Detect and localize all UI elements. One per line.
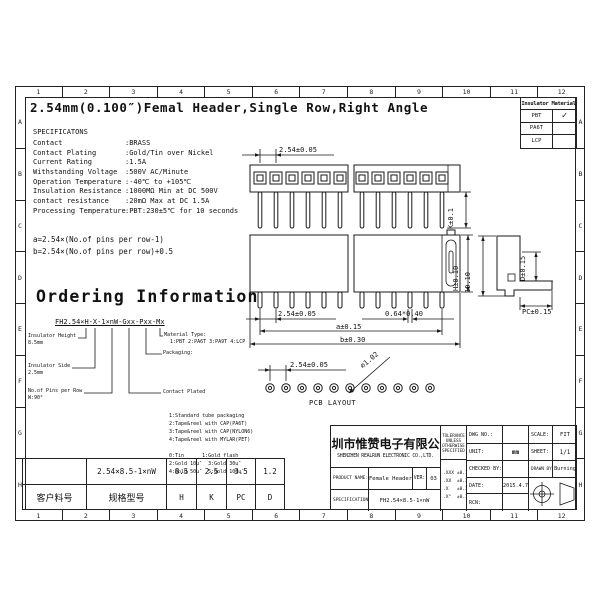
zone-letter: D: [15, 252, 25, 304]
spec-label: Contact: [33, 139, 125, 147]
specification-value: FH2.54×8.5-1×nW: [369, 490, 441, 511]
zone-letter: E: [576, 304, 585, 356]
dim-front-a: a±0.15: [336, 323, 361, 331]
checked-by-value: [503, 461, 529, 478]
zone-letter: G: [576, 408, 585, 460]
zone-letter: D: [576, 252, 585, 304]
dwg-no-value: [503, 426, 529, 444]
rcn-value: [503, 494, 529, 511]
drawing-title: 2.54mm(0.100″)Femal Header,Single Row,Ri…: [30, 101, 428, 115]
h-header: H: [166, 484, 196, 509]
spec-label: Operation Temperature: [33, 178, 125, 186]
tolerance-line: .XX ±0.20: [443, 478, 467, 486]
spec-label: Current Rating: [33, 158, 125, 166]
zone-letter: A: [576, 97, 585, 149]
spec-value: :Gold/Tin over Nickel: [125, 149, 214, 157]
dim-front-b: b±0.30: [340, 336, 365, 344]
material-checkmark: [553, 135, 576, 148]
spec-row: Operation Temperature :-40℃ to +105℃: [33, 177, 238, 187]
spec-value: :20mΩ Max at DC 1.5A: [125, 197, 209, 205]
border-zone-numbers-bottom: 123456789101112: [15, 510, 585, 521]
company-name-cn: 深圳市惟赞电子有限公司: [331, 435, 441, 452]
material-name: PBT: [521, 110, 553, 122]
zone-letter: F: [15, 356, 25, 408]
tolerance-line: .X° ±0.3°: [443, 494, 467, 502]
pcb-layout-label: PCB LAYOUT: [309, 399, 356, 407]
spec-label: Contact Plating: [33, 149, 125, 157]
callout-height-value: 8.5mm: [28, 341, 43, 347]
d-header: D: [255, 484, 284, 509]
zone-number: 2: [63, 510, 111, 521]
zone-letter: H: [576, 459, 585, 510]
h-value: 8.5: [166, 459, 196, 484]
checked-by-label: CHECKED BY:: [467, 461, 503, 478]
customer-part-header: 客户料号: [23, 484, 86, 509]
zone-number: 9: [396, 86, 444, 97]
d-value: 1.2: [255, 459, 284, 484]
spec-row: Insulation Resistance :1000MΩ Min at DC …: [33, 186, 238, 196]
specs-list: Contact :BRASS Contact Plating :Gold/Tin…: [33, 138, 238, 216]
spec-model-cell: 2.54×8.5-1×nW: [86, 459, 166, 484]
dim-front-pitch: 2.54±0.05: [278, 310, 316, 318]
callout-pins-value: W:90°: [28, 396, 43, 402]
border-zone-letters-left: ABCDEFGH: [15, 97, 25, 510]
zone-number: 6: [253, 510, 301, 521]
customer-part-cell: [23, 459, 86, 484]
k-header: K: [196, 484, 226, 509]
zone-number: 5: [205, 86, 253, 97]
spec-row: Contact Plating :Gold/Tin over Nickel: [33, 148, 238, 158]
product-name-label: PRODUCT NAME:: [331, 468, 369, 490]
dim-front-h: H±0.10: [452, 266, 460, 291]
unit-value: mm: [503, 444, 529, 461]
ordering-heading: Ordering Information: [36, 288, 259, 307]
tolerance-note-line: SPECIFIED: [442, 448, 465, 453]
spec-label: contact resistance: [33, 197, 125, 205]
spec-value: :1.5A: [125, 158, 146, 166]
third-angle-projection-icon: [529, 478, 577, 511]
ordering-code: FH2.54×H-X-1×nW-Gxx-Pxx-Mx: [55, 318, 165, 326]
insulator-material-header: Insulator Material: [521, 98, 576, 110]
sheet-label: SHEET:: [529, 444, 553, 461]
zone-number: 1: [15, 510, 63, 521]
tolerance-line: .X ±0.30: [443, 486, 467, 494]
callout-pins-label: No.of Pins per Row: [28, 389, 82, 395]
sheet-value: 1/1: [553, 444, 577, 461]
drawn-by-label: DRAWN BY:: [529, 461, 553, 478]
contact-plated-label: Contact Plated: [163, 390, 205, 396]
border-zone-numbers-top: 123456789101112: [15, 86, 585, 97]
zone-letter: C: [15, 201, 25, 253]
note-a: a=2.54×(No.of pins per row-1): [33, 236, 164, 245]
zone-number: 6: [253, 86, 301, 97]
zone-number: 3: [110, 86, 158, 97]
zone-number: 12: [538, 86, 585, 97]
insulator-material-row: PA6T: [521, 123, 576, 136]
dim-side-height: 10.10: [464, 272, 472, 293]
date-label: DATE:: [467, 478, 503, 494]
zone-number: 10: [443, 86, 491, 97]
unit-label: UNIT:: [467, 444, 503, 461]
pc-value: 3.5: [226, 459, 255, 484]
zone-number: 1: [15, 86, 63, 97]
spec-summary-table: 2.54×8.5-1×nW 8.5 2.5 3.5 1.2 客户料号 规格型号 …: [22, 458, 285, 510]
zone-number: 5: [205, 510, 253, 521]
material-name: LCP: [521, 135, 553, 148]
zone-number: 12: [538, 510, 585, 521]
callout-side-label: Insulator Side: [28, 364, 70, 370]
k-value: 2.5: [196, 459, 226, 484]
dim-side-d: D±0.15: [519, 256, 527, 281]
pc-header: PC: [226, 484, 255, 509]
tolerance-note: TOLERANCEUNLESSOTHERWISESPECIFIED: [441, 426, 467, 460]
zone-number: 10: [443, 510, 491, 521]
spec-value: :PBT:230±5℃ for 10 seconds: [125, 207, 238, 215]
tolerance-line: .XXX ±0.10: [443, 470, 467, 478]
zone-number: 3: [110, 510, 158, 521]
zone-letter: B: [15, 149, 25, 201]
spec-value: :1000MΩ Min at DC 500V: [125, 187, 218, 195]
projection-symbol-cell: [529, 478, 577, 511]
packaging-label: Packaging:: [163, 351, 193, 357]
spec-value: :-40℃ to +105℃: [125, 178, 191, 186]
dim-top-k: K±0.1: [447, 208, 455, 229]
border-zone-letters-right: ABCDEFGH: [576, 97, 585, 510]
spec-label: Insulation Resistance: [33, 187, 125, 195]
spec-row: Processing Temperature :PBT:230±5℃ for 1…: [33, 206, 238, 216]
zone-letter: B: [576, 149, 585, 201]
zone-number: 8: [348, 510, 396, 521]
zone-number: 8: [348, 86, 396, 97]
zone-number: 11: [491, 86, 539, 97]
spec-value: :500V AC/Minute: [125, 168, 188, 176]
title-block: 深圳市惟赞电子有限公司 SHENZHEN REALRUN ELECTRONIC …: [330, 425, 577, 510]
spec-row: Withstanding Voltage :500V AC/Minute: [33, 167, 238, 177]
version-value: 03: [427, 468, 441, 490]
company-cell: 深圳市惟赞电子有限公司 SHENZHEN REALRUN ELECTRONIC …: [331, 426, 441, 468]
zone-letter: E: [15, 304, 25, 356]
zone-number: 2: [63, 86, 111, 97]
zone-letter: C: [576, 201, 585, 253]
material-checkmark: ✓: [553, 110, 576, 122]
scale-label: SCALE:: [529, 426, 553, 444]
zone-number: 7: [300, 510, 348, 521]
dim-front-pin: 0.64*0.40: [385, 310, 423, 318]
drawn-by-value: Burning: [553, 461, 577, 478]
product-name-value: Female Header: [369, 468, 413, 490]
company-name-en: SHENZHEN REALRUN ELECTRONIC CO.,LTD.: [337, 454, 434, 459]
zone-number: 11: [491, 510, 539, 521]
date-value: 2015.4.7: [503, 478, 529, 494]
version-label: VER:: [413, 468, 427, 490]
callout-height-label: Insulator Height: [28, 334, 76, 340]
scale-value: FIT: [553, 426, 577, 444]
dim-top-pitch: 2.54±0.05: [279, 146, 317, 154]
insulator-material-row: PBT ✓: [521, 110, 576, 123]
specs-heading: SPECIFICATONS: [33, 128, 88, 136]
zone-letter: G: [15, 408, 25, 460]
rcn-label: RCN:: [467, 494, 503, 511]
spec-row: contact resistance :20mΩ Max at DC 1.5A: [33, 196, 238, 206]
material-name: PA6T: [521, 123, 553, 135]
spec-row: Current Rating :1.5A: [33, 157, 238, 167]
specification-label: SPECIFICATION:: [331, 490, 369, 511]
material-checkmark: [553, 123, 576, 135]
insulator-material-table: Insulator Material PBT ✓ PA6T LCP: [520, 97, 577, 149]
dim-side-pc: PC±0.15: [522, 308, 552, 316]
dim-pcb-pitch: 2.54±0.05: [290, 361, 328, 369]
drawing-sheet: 123456789101112 123456789101112 ABCDEFGH…: [0, 0, 600, 600]
dwg-no-label: DWG NO.:: [467, 426, 503, 444]
zone-number: 4: [158, 510, 206, 521]
spec-value: :BRASS: [125, 139, 150, 147]
spec-label: Withstanding Voltage: [33, 168, 125, 176]
tolerance-values: .XXX ±0.10.XX ±0.20.X ±0.30.X° ±0.3°: [441, 460, 467, 511]
zone-letter: A: [15, 97, 25, 149]
callout-side-value: 2.5mm: [28, 371, 43, 377]
spec-model-header: 规格型号: [86, 484, 166, 509]
spec-label: Processing Temperature: [33, 207, 125, 215]
material-type-label: Material Type:: [164, 333, 206, 339]
zone-number: 4: [158, 86, 206, 97]
zone-number: 9: [396, 510, 444, 521]
note-b: b=2.54×(No.of pins per row)+0.5: [33, 248, 173, 257]
material-type-options: 1:PBT 2:PA6T 3:PA9T 4:LCP: [170, 340, 245, 346]
zone-number: 7: [300, 86, 348, 97]
zone-letter: F: [576, 356, 585, 408]
spec-row: Contact :BRASS: [33, 138, 238, 148]
insulator-material-row: LCP: [521, 135, 576, 148]
